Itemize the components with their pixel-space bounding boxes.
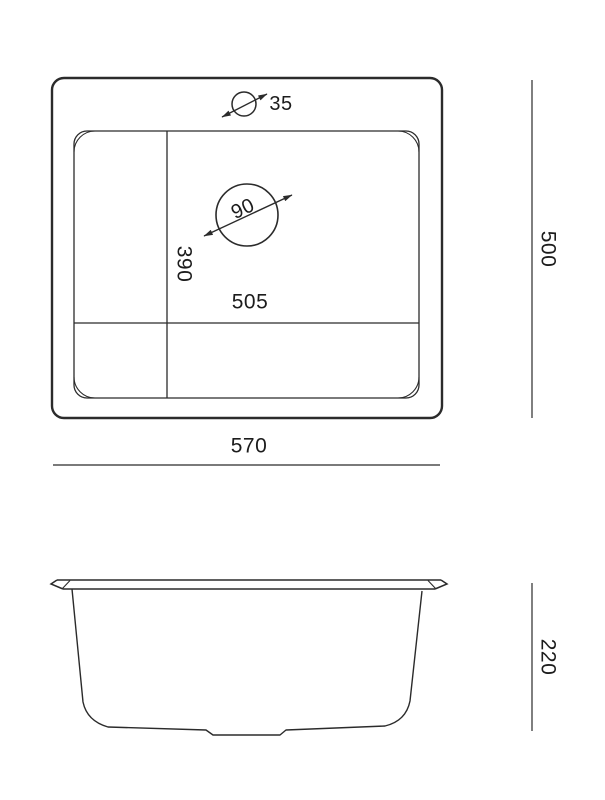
- dim-label-bowl-width: 505: [232, 292, 269, 313]
- sink-dimension-drawing: 35 90 390 505 500 570 220: [0, 0, 605, 800]
- top-view-outer-rim: [52, 78, 442, 418]
- dim-label-overall-height: 220: [538, 639, 559, 676]
- side-view-bowl-profile: [72, 589, 422, 735]
- bowl-corner-fillets: [74, 131, 419, 398]
- dim-label-overall-depth: 500: [538, 231, 559, 268]
- faucet-diameter-dim-line: [222, 94, 267, 117]
- top-view: [52, 78, 532, 465]
- dim-label-bowl-depth: 390: [174, 246, 195, 283]
- drawing-linework: [0, 0, 605, 800]
- side-view-rim: [51, 580, 447, 589]
- dim-label-faucet-hole-diameter: 35: [269, 94, 292, 114]
- dim-label-overall-width: 570: [231, 436, 268, 457]
- side-view: [51, 580, 532, 735]
- faucet-hole-circle: [232, 92, 256, 116]
- top-view-bowl-outline: [74, 131, 419, 398]
